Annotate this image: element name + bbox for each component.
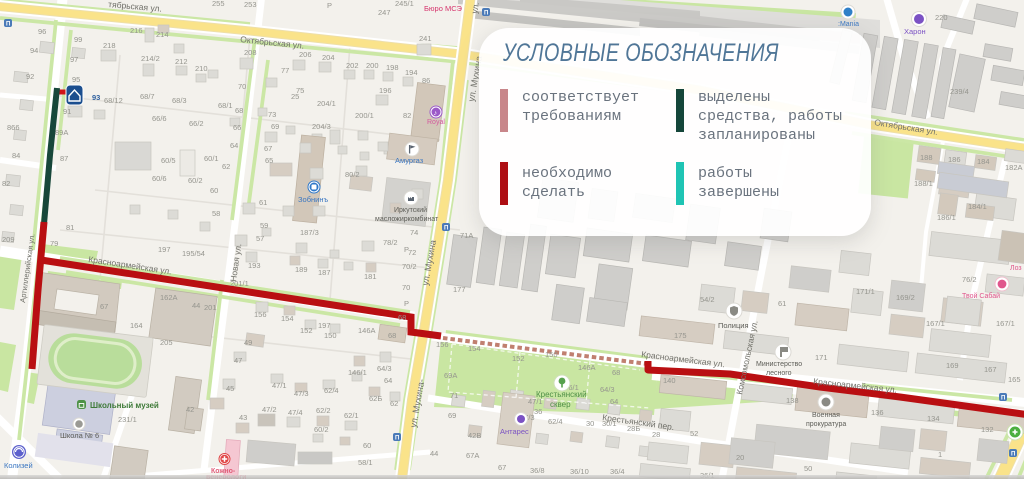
svg-text:Иркутский: Иркутский xyxy=(394,206,427,214)
svg-text:68: 68 xyxy=(398,313,406,322)
svg-text:186: 186 xyxy=(948,155,961,164)
svg-text:87: 87 xyxy=(60,154,68,163)
svg-text:71А: 71А xyxy=(460,231,473,240)
svg-text:167: 167 xyxy=(984,365,997,374)
svg-text:169: 169 xyxy=(946,361,959,370)
svg-text:187: 187 xyxy=(318,268,331,277)
svg-text:47/1: 47/1 xyxy=(272,381,287,390)
svg-text:177: 177 xyxy=(453,285,466,294)
svg-text:171: 171 xyxy=(815,353,828,362)
svg-text:86: 86 xyxy=(422,76,430,85)
svg-text:66/2: 66/2 xyxy=(189,119,204,128)
svg-text:76/2: 76/2 xyxy=(962,275,977,284)
svg-text:Бюро МСЭ: Бюро МСЭ xyxy=(424,4,463,13)
svg-text:Р: Р xyxy=(404,245,409,254)
svg-text:93: 93 xyxy=(92,93,100,102)
svg-text:П: П xyxy=(1011,452,1015,458)
svg-text:171/1: 171/1 xyxy=(856,287,875,296)
svg-text:95: 95 xyxy=(72,75,80,84)
svg-text:198: 198 xyxy=(386,63,399,72)
svg-text:866: 866 xyxy=(7,123,20,132)
svg-text:1: 1 xyxy=(938,450,942,459)
svg-text:94: 94 xyxy=(30,46,38,55)
svg-text:64/3: 64/3 xyxy=(600,385,615,394)
svg-text:69А: 69А xyxy=(444,371,457,380)
svg-text:Военная: Военная xyxy=(812,412,840,419)
svg-text:156: 156 xyxy=(436,340,449,349)
svg-text:220: 220 xyxy=(935,13,948,22)
svg-text:97: 97 xyxy=(70,55,78,64)
svg-text:201/1: 201/1 xyxy=(230,279,249,288)
svg-text:64/3: 64/3 xyxy=(377,364,392,373)
svg-text:Твой Сабай: Твой Сабай xyxy=(962,292,1000,300)
svg-text:74: 74 xyxy=(410,228,418,237)
svg-text:241: 241 xyxy=(419,34,432,43)
svg-text:47/2: 47/2 xyxy=(262,405,277,414)
svg-text:Royal: Royal xyxy=(427,119,445,126)
svg-text:60/5: 60/5 xyxy=(161,156,176,165)
svg-text:Колизей: Колизей xyxy=(4,461,33,470)
svg-text:59: 59 xyxy=(260,221,268,230)
svg-text:67: 67 xyxy=(498,463,506,472)
svg-text:138: 138 xyxy=(786,396,799,405)
svg-text:45: 45 xyxy=(226,384,234,393)
svg-text:36: 36 xyxy=(534,407,542,416)
svg-text:52: 52 xyxy=(690,429,698,438)
svg-text:92: 92 xyxy=(26,72,34,81)
svg-text:64: 64 xyxy=(610,397,618,406)
svg-text:189: 189 xyxy=(295,265,308,274)
svg-text:154: 154 xyxy=(281,314,294,323)
svg-text:146А: 146А xyxy=(358,326,376,335)
svg-text:134: 134 xyxy=(927,414,940,423)
svg-text:82: 82 xyxy=(2,179,10,188)
svg-text:Р: Р xyxy=(327,1,332,10)
svg-text:200: 200 xyxy=(366,61,379,70)
svg-text:214/2: 214/2 xyxy=(141,54,160,63)
svg-text:245/1: 245/1 xyxy=(395,0,414,8)
svg-text:99: 99 xyxy=(74,35,82,44)
svg-text:150: 150 xyxy=(545,350,558,359)
svg-text:140: 140 xyxy=(663,376,676,385)
svg-text:239/4: 239/4 xyxy=(950,87,969,96)
svg-text:71: 71 xyxy=(450,391,458,400)
svg-text:253: 253 xyxy=(244,0,257,9)
svg-text:30: 30 xyxy=(586,419,594,428)
svg-text:20: 20 xyxy=(736,453,744,462)
svg-text:68/3: 68/3 xyxy=(172,96,187,105)
svg-text:162А: 162А xyxy=(160,293,178,302)
svg-text:202: 202 xyxy=(346,61,359,70)
svg-text:68/7: 68/7 xyxy=(140,92,155,101)
svg-text:прокуратура: прокуратура xyxy=(806,421,846,428)
svg-text:206: 206 xyxy=(299,50,312,59)
svg-text:66: 66 xyxy=(233,123,241,132)
svg-text:60: 60 xyxy=(363,441,371,450)
svg-text:156: 156 xyxy=(254,310,267,319)
svg-text:72: 72 xyxy=(408,248,416,257)
svg-text:209: 209 xyxy=(2,235,15,244)
svg-text:197: 197 xyxy=(158,245,171,254)
svg-text:77: 77 xyxy=(281,66,289,75)
svg-text:175: 175 xyxy=(674,331,687,340)
svg-text:184: 184 xyxy=(977,157,990,166)
svg-text:62: 62 xyxy=(222,162,230,171)
svg-text:62/1: 62/1 xyxy=(344,411,359,420)
svg-text:186/1: 186/1 xyxy=(937,213,956,222)
svg-text:69: 69 xyxy=(448,411,456,420)
svg-text:89А: 89А xyxy=(55,128,68,137)
svg-text:73: 73 xyxy=(268,110,276,119)
svg-text:Школьный музей: Школьный музей xyxy=(90,401,159,410)
svg-text:44: 44 xyxy=(430,449,438,458)
svg-text:70: 70 xyxy=(402,283,410,292)
svg-text:150: 150 xyxy=(324,331,337,340)
svg-text:43: 43 xyxy=(239,413,247,422)
svg-text:167/1: 167/1 xyxy=(926,319,945,328)
svg-text:216: 216 xyxy=(130,26,143,35)
svg-text:66/6: 66/6 xyxy=(152,114,167,123)
svg-text:210: 210 xyxy=(195,64,208,73)
svg-text:лесного: лесного xyxy=(766,370,792,377)
svg-text:214: 214 xyxy=(156,30,169,39)
svg-text:42: 42 xyxy=(186,405,194,414)
svg-text:62Б: 62Б xyxy=(369,394,382,403)
svg-text:54/2: 54/2 xyxy=(700,295,715,304)
svg-text:204: 204 xyxy=(322,53,335,62)
svg-text:204/3: 204/3 xyxy=(312,122,331,131)
svg-text:67: 67 xyxy=(264,144,272,153)
svg-text:255: 255 xyxy=(212,0,225,8)
svg-text:78/2: 78/2 xyxy=(383,238,398,247)
svg-text:152: 152 xyxy=(300,326,313,335)
svg-text:167/1: 167/1 xyxy=(996,319,1015,328)
svg-text:194: 194 xyxy=(405,68,418,77)
svg-text:47: 47 xyxy=(234,356,242,365)
svg-text:70: 70 xyxy=(238,82,246,91)
svg-text:Р: Р xyxy=(404,299,409,308)
svg-text:Школа № 6: Школа № 6 xyxy=(60,431,99,440)
svg-text:65: 65 xyxy=(265,156,273,165)
svg-text:П: П xyxy=(1001,396,1005,402)
svg-text:68: 68 xyxy=(235,106,243,115)
svg-text:231/1: 231/1 xyxy=(118,415,137,424)
svg-text:68: 68 xyxy=(612,368,620,377)
svg-text:62/4: 62/4 xyxy=(548,417,563,426)
svg-text:136: 136 xyxy=(871,408,884,417)
svg-text:60: 60 xyxy=(210,186,218,195)
svg-text:169/2: 169/2 xyxy=(896,293,915,302)
svg-text:62/2: 62/2 xyxy=(316,406,331,415)
svg-text:62: 62 xyxy=(390,399,398,408)
svg-text:Зобнинъ: Зобнинъ xyxy=(298,195,328,204)
svg-text:Министерство: Министерство xyxy=(756,361,802,368)
svg-text:64: 64 xyxy=(384,376,392,385)
svg-text:Полиция: Полиция xyxy=(718,321,749,330)
svg-text:Антарес: Антарес xyxy=(500,427,529,436)
svg-text:154: 154 xyxy=(468,344,481,353)
svg-text:Амургаз: Амургаз xyxy=(395,156,424,165)
svg-text:64: 64 xyxy=(230,141,238,150)
svg-text:188/1: 188/1 xyxy=(914,179,933,188)
svg-text:195/54: 195/54 xyxy=(182,249,205,258)
svg-text:164: 164 xyxy=(130,321,143,330)
svg-text:67: 67 xyxy=(100,302,108,311)
svg-text:196: 196 xyxy=(379,86,392,95)
svg-text:91: 91 xyxy=(63,107,71,116)
svg-text:208: 208 xyxy=(244,48,257,57)
svg-text:197: 197 xyxy=(318,321,331,330)
svg-text:Харон: Харон xyxy=(904,27,926,36)
svg-text:212: 212 xyxy=(175,57,188,66)
svg-text:200/1: 200/1 xyxy=(355,111,374,120)
svg-text:58: 58 xyxy=(212,209,220,218)
svg-text:205: 205 xyxy=(160,338,173,347)
svg-text:сквер: сквер xyxy=(550,400,571,409)
svg-text:247: 247 xyxy=(378,8,391,17)
svg-text:36/8: 36/8 xyxy=(530,466,545,475)
svg-text:60/6: 60/6 xyxy=(152,174,167,183)
svg-text:28Б: 28Б xyxy=(627,424,640,433)
svg-text:50: 50 xyxy=(804,464,812,473)
svg-text:58/1: 58/1 xyxy=(358,458,373,467)
svg-text:84: 84 xyxy=(12,151,20,160)
svg-text:79: 79 xyxy=(50,239,58,248)
svg-text:П: П xyxy=(484,11,488,17)
svg-text:42В: 42В xyxy=(468,431,481,440)
svg-text:81: 81 xyxy=(66,223,74,232)
svg-text:61: 61 xyxy=(259,198,267,207)
svg-text:165: 165 xyxy=(1008,375,1021,384)
svg-text:80/2: 80/2 xyxy=(345,170,360,179)
svg-text:82: 82 xyxy=(403,111,411,120)
svg-text:44: 44 xyxy=(192,301,200,310)
svg-text:201: 201 xyxy=(204,303,217,312)
svg-text:193: 193 xyxy=(248,261,261,270)
svg-text:47/4: 47/4 xyxy=(288,408,303,417)
svg-text:68: 68 xyxy=(388,331,396,340)
svg-text:67А: 67А xyxy=(466,451,479,460)
svg-text:49: 49 xyxy=(244,338,252,347)
svg-text:69: 69 xyxy=(271,122,279,131)
svg-text:П: П xyxy=(395,436,399,442)
svg-text:П: П xyxy=(6,22,10,28)
svg-text:47/3: 47/3 xyxy=(294,389,309,398)
svg-text:57: 57 xyxy=(256,234,264,243)
svg-text:146А: 146А xyxy=(578,363,596,372)
svg-text:масложиркомбинат: масложиркомбинат xyxy=(375,215,439,223)
svg-text:25: 25 xyxy=(291,92,299,101)
svg-text:132: 132 xyxy=(981,425,994,434)
svg-text:28: 28 xyxy=(652,430,660,439)
svg-text:61: 61 xyxy=(778,299,786,308)
svg-text:152: 152 xyxy=(512,354,525,363)
svg-text:187/3: 187/3 xyxy=(300,228,319,237)
svg-text:96: 96 xyxy=(38,27,46,36)
svg-text:70/2: 70/2 xyxy=(402,262,417,271)
svg-text:188: 188 xyxy=(920,153,933,162)
svg-text:60/2: 60/2 xyxy=(188,176,203,185)
svg-text:♪: ♪ xyxy=(434,110,438,117)
svg-text:68/1: 68/1 xyxy=(218,101,233,110)
svg-text::Mania: :Mania xyxy=(838,21,859,28)
svg-text:62/4: 62/4 xyxy=(324,386,339,395)
svg-text:60/2: 60/2 xyxy=(314,425,329,434)
svg-text:184/1: 184/1 xyxy=(968,202,987,211)
svg-text:68/12: 68/12 xyxy=(104,96,123,105)
svg-text:181: 181 xyxy=(364,272,377,281)
svg-text:Крестьянский: Крестьянский xyxy=(536,390,587,399)
svg-text:Лоз: Лоз xyxy=(1010,265,1022,272)
svg-text:П: П xyxy=(444,226,448,232)
svg-text:30/1: 30/1 xyxy=(602,419,617,428)
svg-text:60/1: 60/1 xyxy=(204,154,219,163)
svg-text:204/1: 204/1 xyxy=(317,99,336,108)
svg-text:146/1: 146/1 xyxy=(348,368,367,377)
svg-text:218: 218 xyxy=(103,41,116,50)
svg-text:182А: 182А xyxy=(1005,163,1023,172)
